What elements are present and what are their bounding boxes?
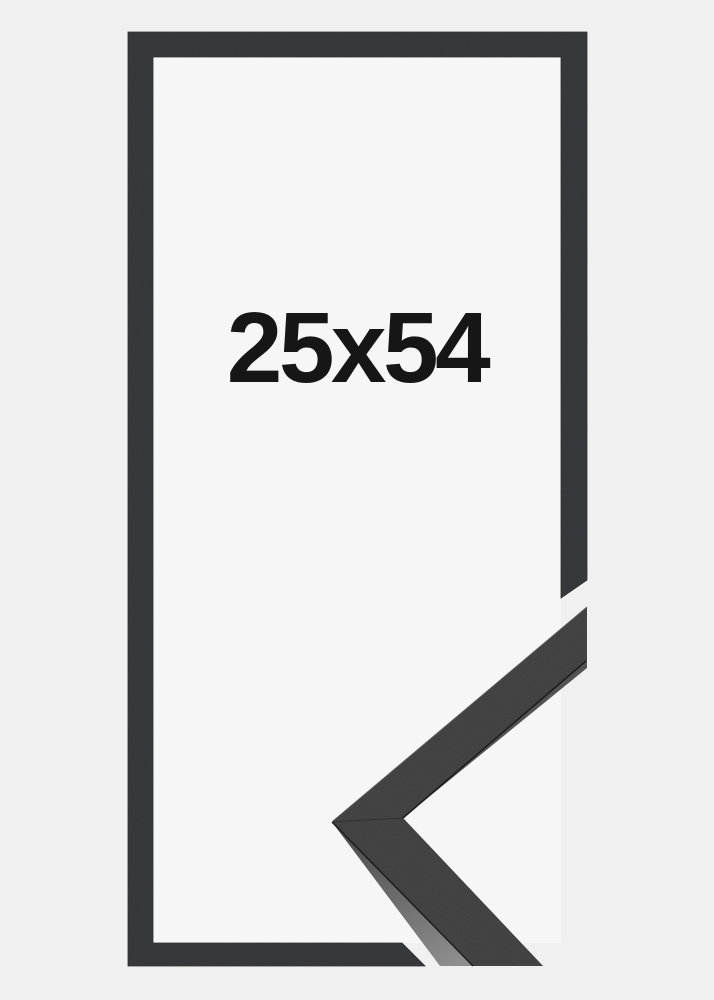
frame-illustration: 25x54: [0, 0, 714, 1000]
product-image: 25x54: [0, 0, 714, 1000]
frame-size-label: 25x54: [227, 292, 491, 404]
